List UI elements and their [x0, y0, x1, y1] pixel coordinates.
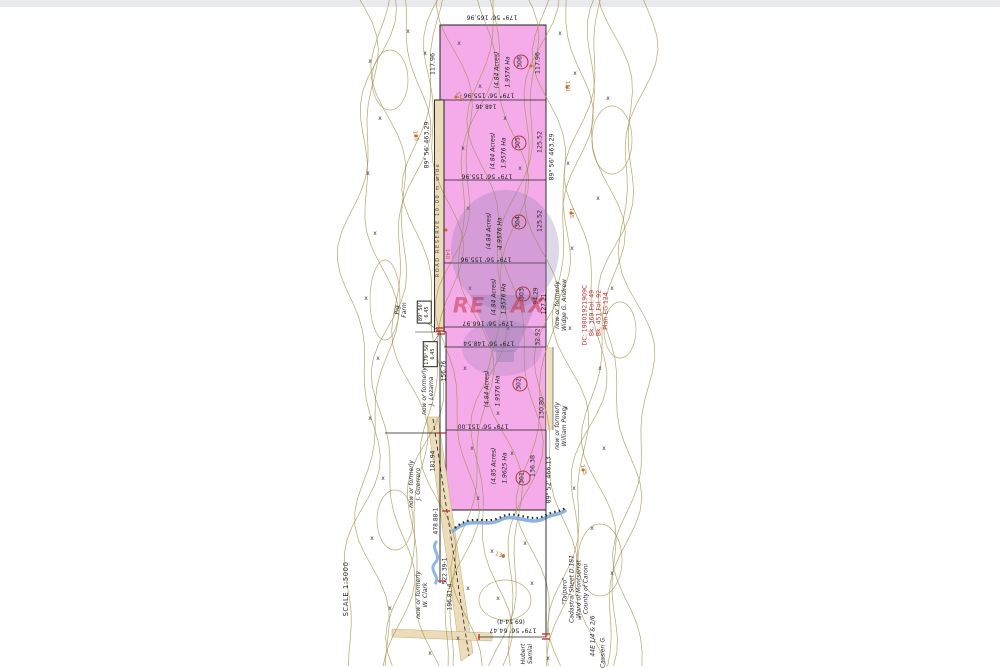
lot306-area-ac: (4.84 Acres): [493, 52, 500, 89]
dim-divider-5: 179° 56' 148.54: [464, 339, 515, 346]
dim-top-boundary: 179° 56' 165.96: [467, 13, 518, 20]
dim-left-15676: 156.76: [440, 361, 447, 382]
dim-left-47888: 478.88-1: [432, 508, 439, 535]
dim-bottom: 179° 56' 64.47: [490, 626, 537, 633]
contour-130: 130: [494, 551, 506, 561]
owner-lezama: now or formerlyJ. Lezama: [421, 367, 435, 415]
dim-left-19681: 196.81-4: [446, 584, 453, 611]
owner-cassieri: Cassieri G.: [599, 636, 606, 668]
dim-bottom-alt: (69.54-4): [497, 617, 525, 624]
dim-right-13080: 130.80: [538, 397, 545, 419]
lot305-area-ha: 1.9576 Ha: [500, 137, 507, 168]
box-17956-645: 179° 56'6.45: [423, 341, 438, 367]
dim-right-11796: 117.96: [534, 52, 541, 74]
lot304-number: 304: [512, 215, 527, 230]
lot303-area-ac: (4.84 Acres): [490, 279, 497, 316]
owner-hubert: HubertSamlal: [520, 644, 534, 665]
lot304-area-ac: (4.84 Acres): [485, 213, 492, 250]
dim-divider-1b: 148.46: [476, 102, 497, 109]
lot306-number: 306: [514, 55, 529, 70]
lot302-number: 302: [513, 377, 528, 392]
scale-label: SCALE 1:5000: [342, 561, 350, 616]
map-labels: 179° 56' 165.96179° 56' 155.96148.46179°…: [0, 0, 1000, 667]
owner-andrew: now or formerlyWidge G. Andrew: [554, 279, 568, 331]
dim-left-11796: 117.96: [429, 53, 436, 75]
owner-peary: now or formerlyWilliam Peary: [554, 402, 568, 450]
sheet-ref: 44E 1/4 & 2/6: [589, 615, 596, 656]
lot303-area-ha: 1.9576 Ha: [500, 283, 507, 314]
road-reserve-label: ROAD RESERVE 10.00 m wide: [436, 163, 442, 278]
dim-divider-1: 179° 56' 155.96: [464, 91, 515, 98]
lot302-area-ha: 1.9576 Ha: [494, 375, 501, 406]
owner-pig-farm: PigFarm: [394, 302, 408, 317]
cadastral-map: xxxxxxxxxxxxxxxxxxxxxxxxxxxxxxxxxxxxxxxx…: [0, 0, 1000, 667]
lot306-area-ha: 1.9576 Ha: [504, 56, 511, 87]
watermark-ax: AX: [511, 294, 545, 319]
box-8956-645: 89° 56'6.45: [417, 300, 432, 323]
lot304-area-ha: 1.9576 Ha: [496, 217, 503, 248]
contour-125: 125: [411, 130, 419, 141]
dim-right-46613: 89° 52' 466.13: [545, 457, 552, 504]
dim-right-3292: 32.92: [534, 328, 541, 345]
dim-divider-6: 179° 56' 151.00: [458, 422, 509, 429]
lot305-number: 305: [512, 136, 527, 151]
dim-divider-4: 179° 56' 166.97: [463, 319, 514, 326]
dim-right-12552a: 125.52: [536, 131, 543, 153]
cadastral-block: Cadastral Sheet D.181Ward of MontserratC…: [568, 555, 589, 623]
owner-guerrero: now or formerlyJ. Guerrero: [408, 460, 422, 508]
dim-divider-3: 179° 56' 155.96: [461, 255, 512, 262]
dim-left-18194: 181.94: [429, 451, 436, 472]
lot301-area-ha: 1.9625 Ha: [501, 452, 508, 483]
dim-divider-2: 179° 56' 155.96: [462, 172, 513, 179]
place-talparo: "Talparo": [561, 577, 568, 605]
contour-140: 140: [444, 249, 450, 260]
lot301-number: 301: [516, 471, 531, 486]
lot305-area-ac: (4.84 Acres): [489, 133, 496, 170]
dim-left-52239: 522.39-1: [441, 558, 448, 585]
contour-150b: 150: [564, 81, 570, 92]
ref-plan: Plan EG 124: [602, 292, 609, 330]
lot301-area-ac: (4.85 Acres): [490, 448, 497, 485]
dim-left-46329: 89° 56' 463.29: [423, 122, 430, 169]
dim-right-46329: 89° 56' 463.29: [548, 134, 555, 181]
watermark-re: RE: [453, 294, 486, 319]
dim-right-13638: 136.38: [529, 455, 536, 477]
owner-clark: now or formerlyW. Clark: [415, 571, 429, 619]
contour-145: 145: [568, 208, 574, 219]
lot302-area-ac: (4.84 Acres): [483, 371, 490, 408]
dim-right-12552b: 125.52: [536, 210, 543, 232]
contour-135: 135: [579, 464, 588, 476]
